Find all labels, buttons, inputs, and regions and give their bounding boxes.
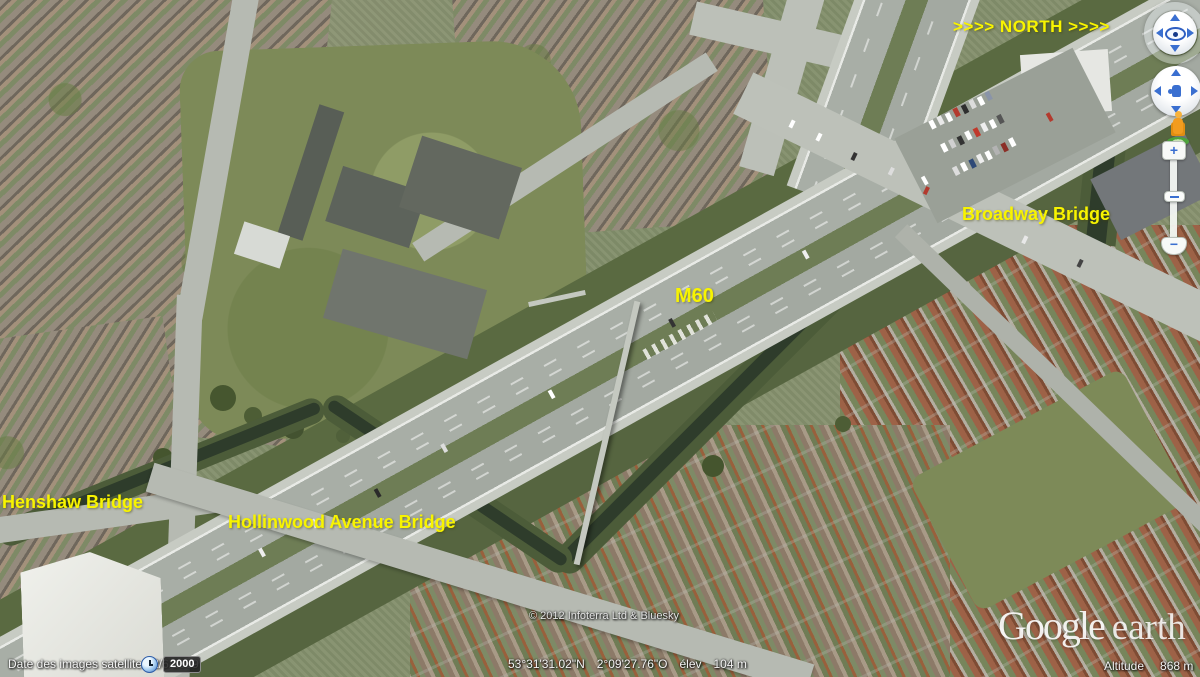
zoom-handle-mark: [1170, 196, 1179, 198]
look-knob[interactable]: [1153, 11, 1197, 55]
hand-icon: [1172, 85, 1181, 97]
placemark-label-broadway-bridge[interactable]: Broadway Bridge: [962, 204, 1110, 225]
zoom-in-button[interactable]: +: [1162, 141, 1186, 160]
longitude-value: 2°09'27.76"O: [597, 657, 668, 671]
google-earth-viewport[interactable]: >>>> NORTH >>>> Broadway Bridge M60 Hens…: [0, 0, 1200, 677]
pegman-head: [1175, 111, 1182, 118]
pan-left-arrow-icon[interactable]: [1154, 86, 1161, 96]
map-tree-clusters: [210, 385, 236, 411]
look-right-arrow-icon[interactable]: [1187, 28, 1194, 38]
zoom-slider-handle[interactable]: [1164, 191, 1185, 202]
look-up-arrow-icon[interactable]: [1170, 14, 1180, 21]
placemark-label-north[interactable]: >>>> NORTH >>>>: [953, 17, 1110, 37]
altitude-label: Altitude: [1104, 659, 1144, 673]
coordinate-readout: 53°31'31.02"N 2°09'27.76"O élev 104 m: [508, 657, 759, 671]
elevation-value: 104 m: [714, 657, 747, 671]
historical-imagery-clock-icon[interactable]: [141, 656, 158, 673]
imagery-year-badge[interactable]: 2000: [163, 656, 201, 673]
placemark-label-m60[interactable]: M60: [675, 285, 714, 308]
placemark-label-henshaw-bridge[interactable]: Henshaw Bridge: [2, 492, 143, 513]
placemark-label-hollinwood-avenue-bridge[interactable]: Hollinwood Avenue Bridge: [228, 512, 456, 533]
look-down-arrow-icon[interactable]: [1170, 45, 1180, 52]
eye-icon: [1165, 27, 1186, 41]
eye-pupil: [1173, 32, 1178, 37]
look-left-arrow-icon[interactable]: [1156, 28, 1163, 38]
google-earth-watermark: Google earth: [998, 602, 1186, 649]
clock-minute-hand: [149, 664, 153, 666]
imagery-copyright: © 2012 Infoterra Ltd & Bluesky: [529, 610, 679, 622]
elevation-label: élev: [679, 657, 701, 671]
look-joystick[interactable]: N: [1144, 2, 1200, 64]
latitude-value: 53°31'31.02"N: [508, 657, 585, 671]
pan-right-arrow-icon[interactable]: [1191, 86, 1198, 96]
watermark-google: Google: [998, 602, 1104, 649]
pegman-body: [1173, 118, 1183, 134]
altitude-value: 868 m: [1160, 659, 1193, 673]
watermark-earth: earth: [1112, 606, 1186, 649]
pan-up-arrow-icon[interactable]: [1171, 69, 1181, 76]
altitude-readout: Altitude 868 m: [1104, 657, 1200, 675]
